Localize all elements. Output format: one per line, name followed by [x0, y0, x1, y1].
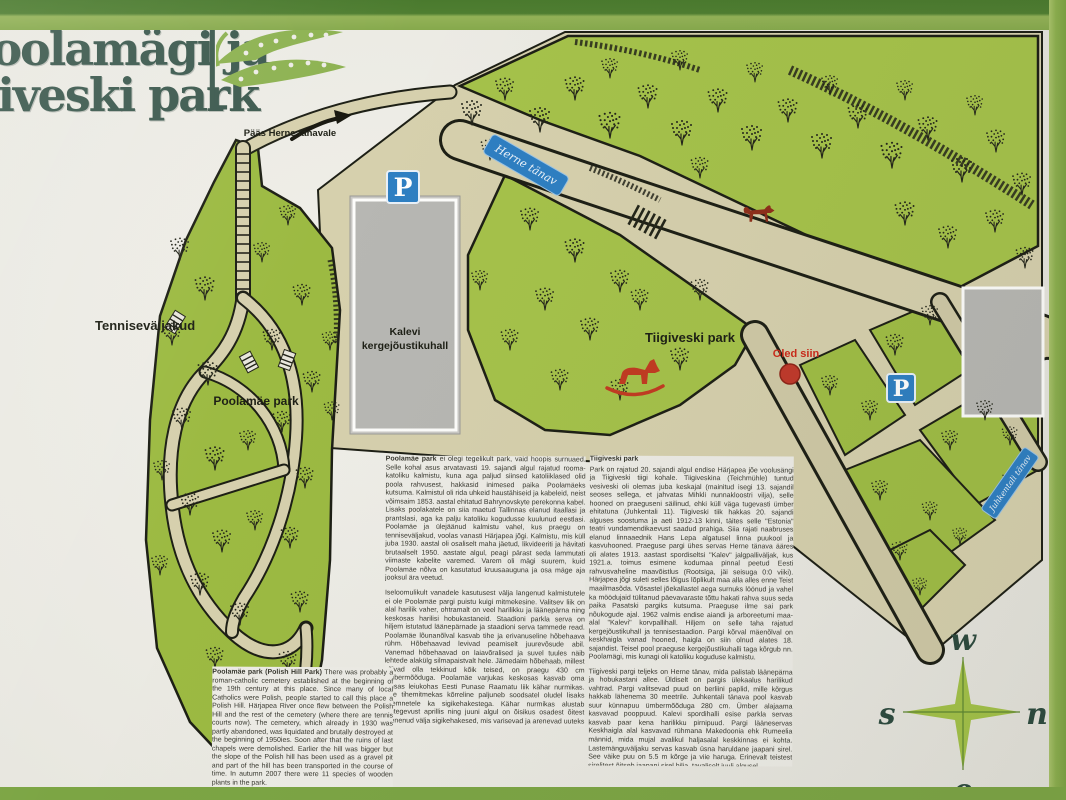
sign-frame-top	[0, 0, 1066, 30]
text-block-poolamae-et: Poolamäe park ei olegi tegelikult park, …	[384, 455, 585, 726]
label-tiigiveski-park: Tiigiveski park	[645, 330, 736, 345]
parking-sign-tiigiveski: P	[887, 374, 915, 402]
tiigiveski-et-para1: Park on rajatud 20. sajandi algul endise…	[589, 466, 794, 663]
text-block-tiigiveski-et: Tiigiveski park Park on rajatud 20. saja…	[588, 455, 794, 766]
park-info-sign-photo: Poolamägi ja Tiigiveski park [	[0, 0, 1066, 800]
you-are-here-marker	[780, 364, 800, 384]
label-poolamae-park: Poolamäe park	[213, 394, 299, 408]
compass-letter-s: s	[878, 697, 896, 732]
poolamae-et-para1: ei olegi tegelikult park, vaid hoopis su…	[385, 456, 586, 582]
poolamae-en-para1: There was probably a roman-catholic ceme…	[212, 669, 394, 787]
entrance-arrow-label: Pääs Herne tänavale	[244, 128, 336, 139]
building-kalevi-hall	[350, 196, 460, 434]
poolamae-et-lead: Poolamäe park	[386, 455, 437, 462]
parking-sign-letter: P	[394, 173, 413, 202]
sign-frame-right	[1049, 0, 1066, 800]
label-kalevi-line2: kergejõustikuhall	[362, 340, 448, 352]
compass-rose: w s n e	[878, 623, 1048, 800]
poolamae-en-lead: Poolamäe park (Polish Hill Park)	[212, 669, 322, 677]
poolamae-et-para2: Iseloomulikult vanadele kasutusest välja…	[384, 589, 585, 726]
parking-sign-kalevi: P	[387, 171, 419, 203]
text-block-poolamae-en: Poolamäe park (Polish Hill Park) There w…	[212, 667, 394, 795]
compass-letter-n: n	[1026, 697, 1048, 732]
label-tennis-courts: Tenniseväljakud	[95, 318, 195, 333]
label-kalevi-line1: Kalevi	[390, 326, 421, 338]
you-are-here-label: Oled siin	[773, 348, 820, 360]
parking-sign-letter: P	[893, 376, 910, 402]
tiigiveski-et-heading: Tiigiveski park	[590, 455, 794, 465]
building-unnamed	[963, 288, 1043, 416]
sign-frame-bottom	[0, 787, 1066, 800]
compass-letter-w: w	[950, 623, 977, 658]
tiigiveski-et-para2: Tiigiveski pargi teljeks on Herne tänav,…	[588, 668, 793, 766]
